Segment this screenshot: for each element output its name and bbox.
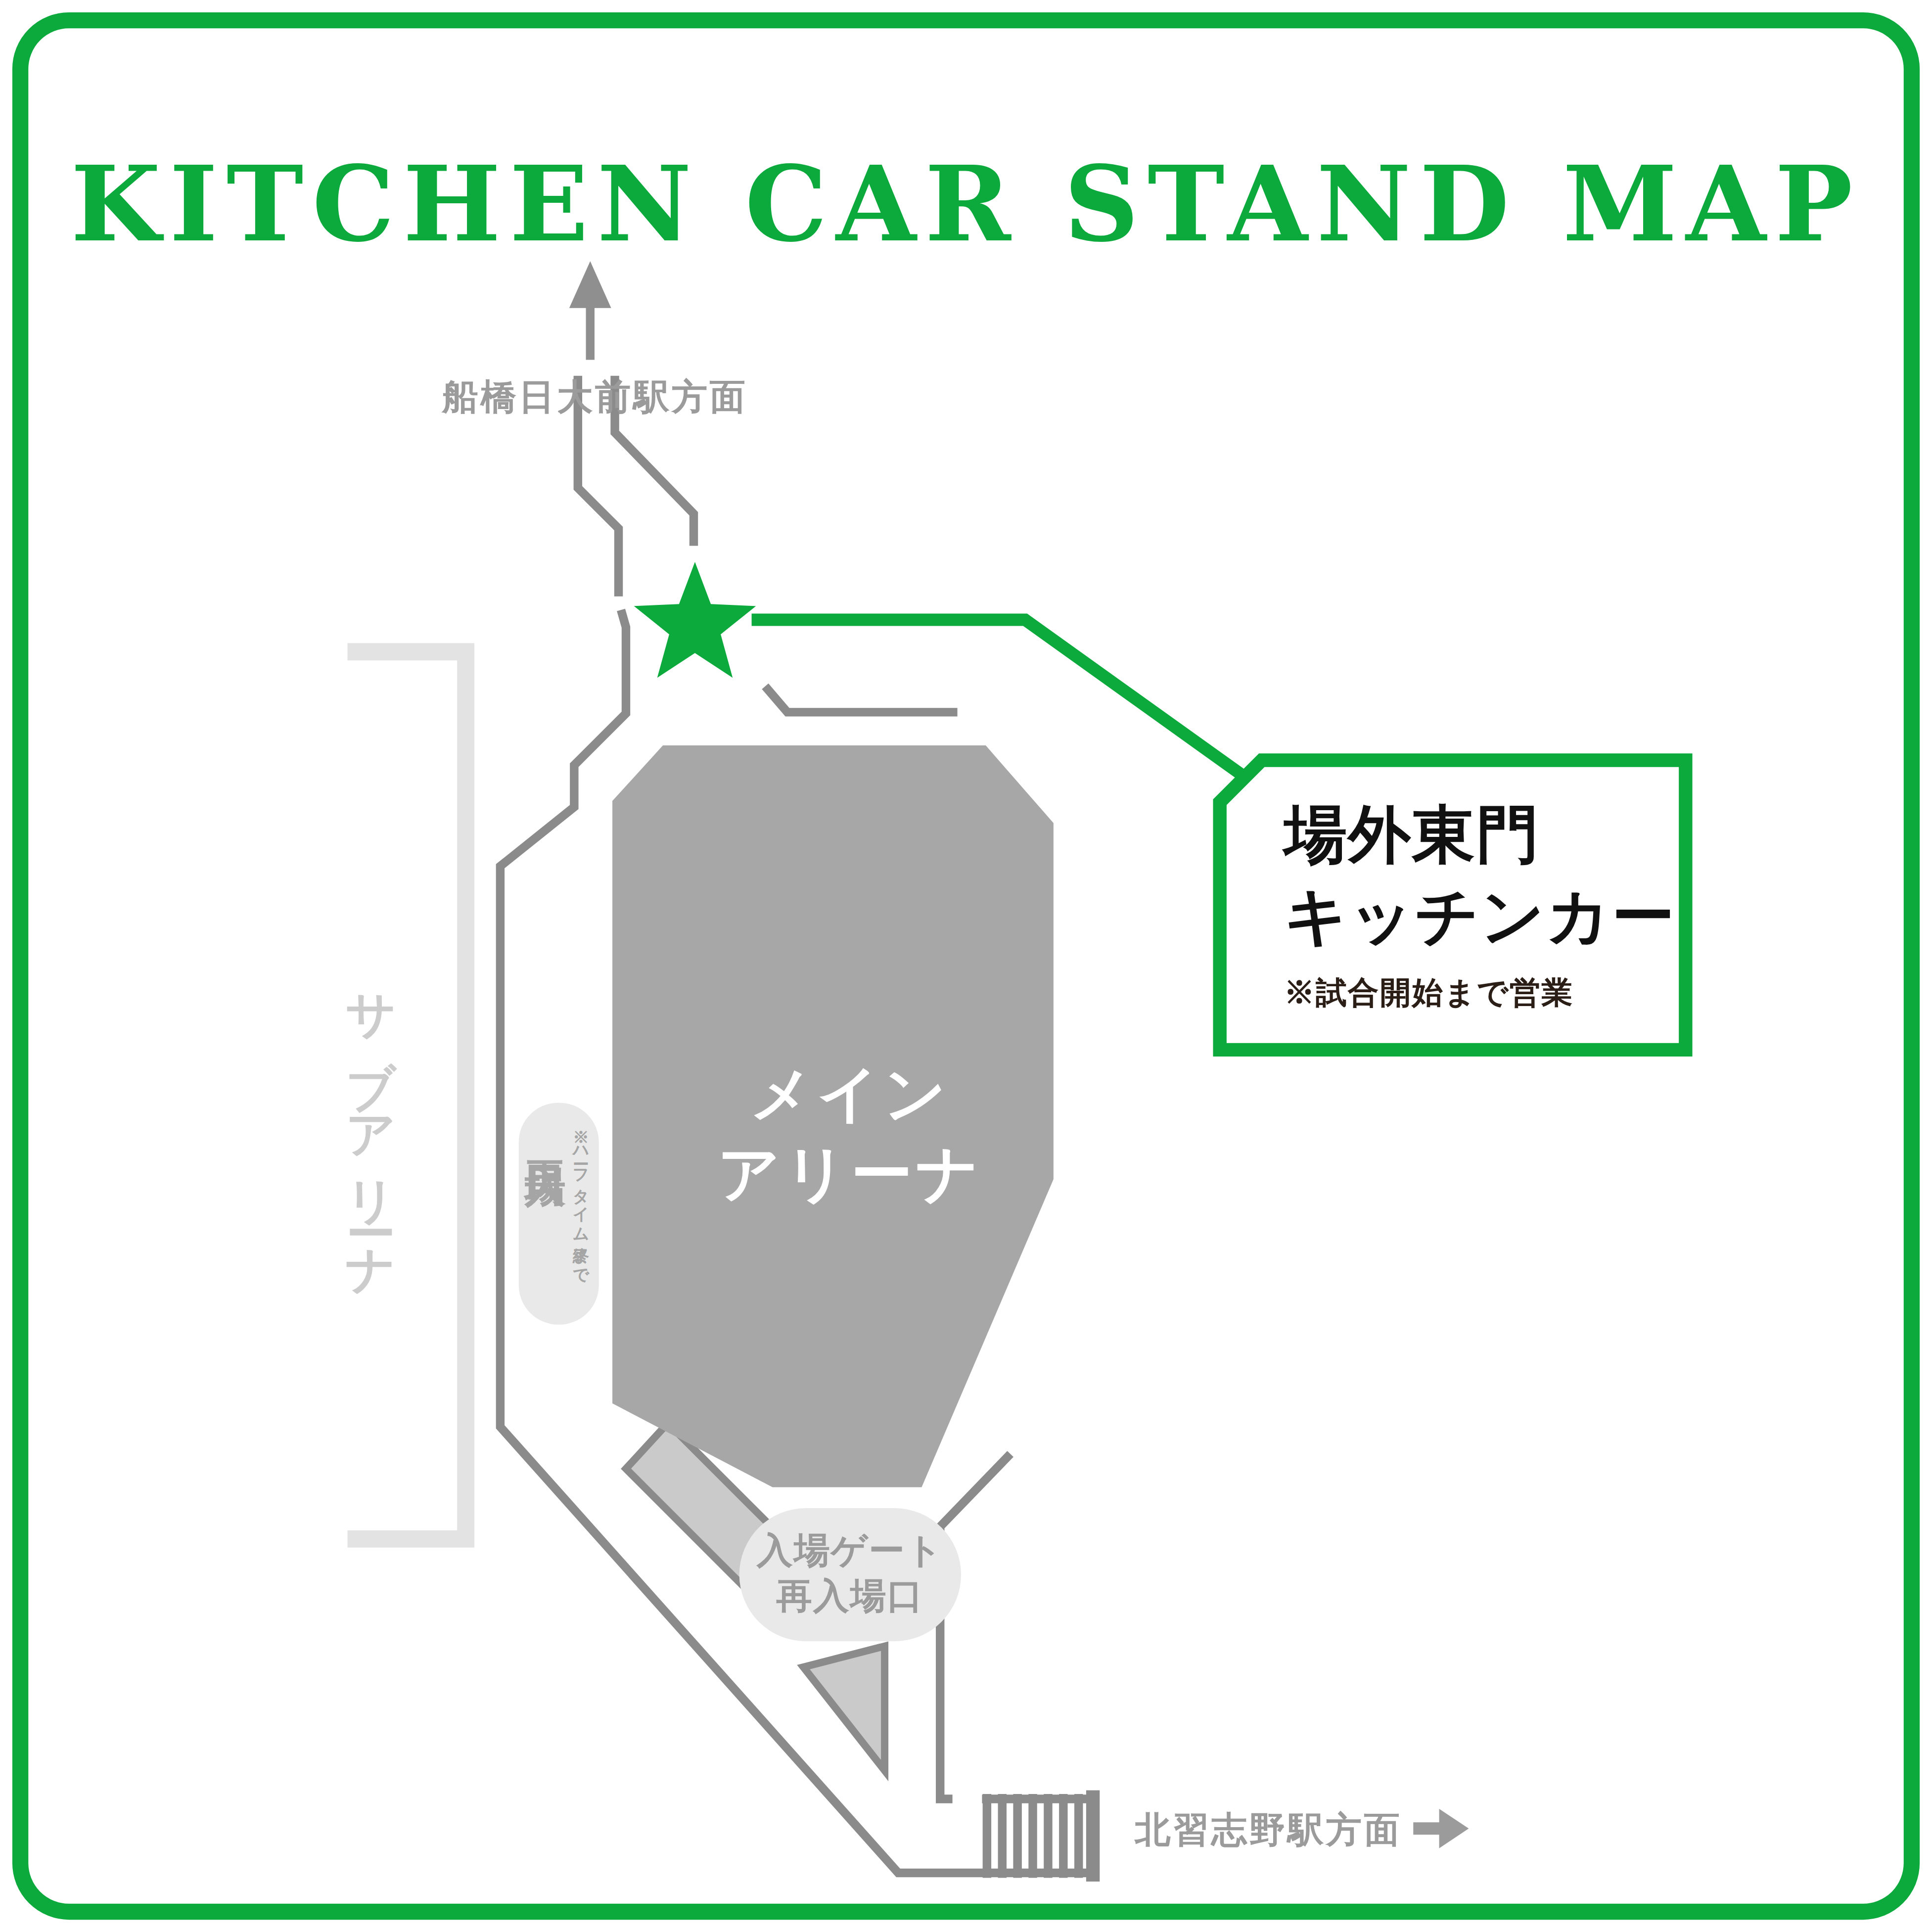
road-below-star xyxy=(765,687,958,712)
main-arena-label: メイン アリーナ xyxy=(717,1055,983,1215)
north-station-label: 船橋日大前駅方面 xyxy=(442,373,748,423)
callout-note: ※試合開始まで営業 xyxy=(1284,972,1676,1012)
main-arena-label-line1: メイン xyxy=(717,1055,983,1135)
callout-line1: 場外東門 xyxy=(1284,795,1676,876)
road-inner-edge xyxy=(940,1454,1089,1799)
stairs-icon xyxy=(987,1791,1093,1882)
reentry-gate-label: 再入場口 xyxy=(517,1129,572,1139)
walkway-triangle xyxy=(803,1646,884,1771)
entrance-gate-label-line2: 再入場口 xyxy=(739,1573,961,1619)
entrance-gate-label-line1: 入場ゲート xyxy=(739,1528,961,1573)
sub-arena-label: サブアリーナ xyxy=(338,959,406,1276)
entrance-gate-label: 入場ゲート 再入場口 xyxy=(739,1528,961,1619)
kitchen-car-star-icon xyxy=(634,562,756,678)
kitchen-car-callout: 場外東門 キッチンカー ※試合開始まで営業 xyxy=(1284,795,1676,1013)
up-arrow-icon xyxy=(569,261,611,360)
right-arrow-icon xyxy=(1413,1809,1469,1848)
stairs-steps xyxy=(987,1794,1078,1878)
reentry-gate-note: ※ハーフタイム終了まで xyxy=(569,1119,592,1276)
main-arena-label-line2: アリーナ xyxy=(717,1135,983,1215)
south-station-label: 北習志野駅方面 xyxy=(1135,1806,1402,1856)
callout-line2: キッチンカー xyxy=(1284,876,1676,957)
kitchen-car-stand-map-poster: KITCHEN CAR STAND MAP 船橋日大前駅方面 xyxy=(0,0,1932,1932)
